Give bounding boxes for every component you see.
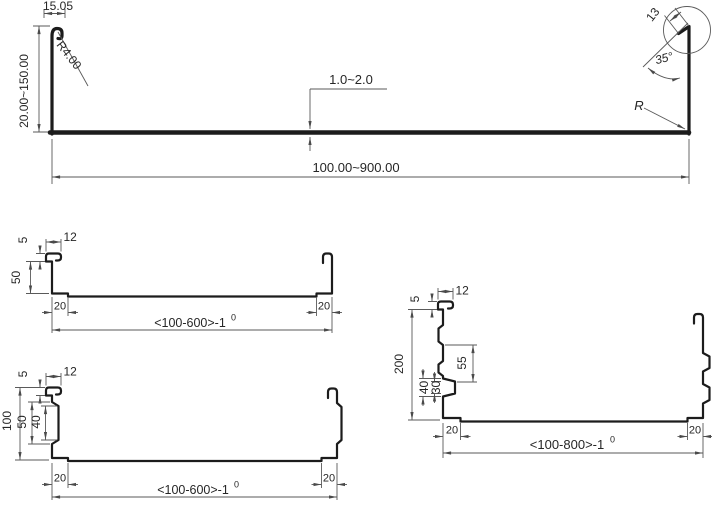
rib-inner-ext-lines xyxy=(41,406,57,440)
hook-width-ext-lines xyxy=(46,373,61,386)
overall-width-tolerance-sup: 0 xyxy=(610,435,615,445)
hook-width-label: 12 xyxy=(64,230,78,244)
hook-offset-label: 5 xyxy=(16,370,30,377)
leg-height-label: 100 xyxy=(0,411,14,431)
mid-left-profile: 12 5 50 20 20 <100-600>-1 0 xyxy=(9,230,342,333)
rib-outer-label: 50 xyxy=(15,415,29,429)
mid-left-profile-outline xyxy=(46,254,332,297)
leg-height-label: 200 xyxy=(392,354,406,374)
right-foot-label: 20 xyxy=(323,473,335,485)
hook-width-label: 12 xyxy=(64,365,78,379)
rib-spacing-label: 55 xyxy=(455,356,469,370)
hem-angle-arc xyxy=(648,68,680,79)
top-profile-right-leg-outline xyxy=(679,27,690,135)
left-foot-label: 20 xyxy=(446,425,458,437)
hook-offset-label: 5 xyxy=(408,295,422,302)
left-foot-label: 20 xyxy=(54,301,66,313)
corner-radius-leader xyxy=(644,108,685,129)
technical-drawing-canvas: 15.05 R4.00 20.00~150.00 1.0~2.0 100.00~… xyxy=(0,0,712,508)
right-profile-outline xyxy=(438,302,710,422)
top-profile: 15.05 R4.00 20.00~150.00 1.0~2.0 100.00~… xyxy=(17,0,711,184)
leg-height-label: 50 xyxy=(9,271,23,285)
hem-angle-label: 35° xyxy=(654,49,675,67)
lip-radius-label: R4.00 xyxy=(54,38,85,72)
overall-width-tolerance-sup: 0 xyxy=(231,313,236,323)
hem-detail-circle xyxy=(664,7,711,54)
right-profile: 12 5 200 55 40 30 20 20 <100 xyxy=(392,284,712,459)
hook-width-ext-lines xyxy=(438,288,453,300)
height-ext-lines xyxy=(33,26,50,132)
rib-inner-label: 40 xyxy=(29,415,43,429)
hook-offset-label: 5 xyxy=(16,236,30,243)
thickness-range-label: 1.0~2.0 xyxy=(329,72,373,87)
height-range-label: 20.00~150.00 xyxy=(17,54,31,128)
overall-width-label: <100-600>-1 xyxy=(154,316,226,330)
hook-offset-ext-lines xyxy=(15,388,45,396)
right-foot-label: 20 xyxy=(318,301,330,313)
hem-length-label: 13 xyxy=(643,5,662,24)
width-range-label: 100.00~900.00 xyxy=(312,160,399,175)
hem-length-dim-line xyxy=(670,12,681,21)
corner-radius-label: R xyxy=(634,98,643,113)
bottom-left-profile: 12 5 100 50 40 20 20 <100-600>-1 0 xyxy=(0,365,347,501)
hook-width-ext-lines xyxy=(46,239,61,252)
rib-inner-label: 30 xyxy=(429,381,443,395)
panel-profiles-drawing: 15.05 R4.00 20.00~150.00 1.0~2.0 100.00~… xyxy=(0,0,712,508)
overall-width-tolerance-sup: 0 xyxy=(234,480,239,490)
hook-offset-ext-lines xyxy=(26,254,45,262)
bottom-left-profile-outline xyxy=(46,388,342,462)
overall-width-label: <100-800>-1 xyxy=(530,437,604,452)
lip-width-label: 15.05 xyxy=(43,0,73,13)
left-foot-label: 20 xyxy=(54,473,66,485)
hook-width-label: 12 xyxy=(456,284,470,298)
overall-width-label: <100-600>-1 xyxy=(157,483,229,497)
right-foot-label: 20 xyxy=(689,425,701,437)
